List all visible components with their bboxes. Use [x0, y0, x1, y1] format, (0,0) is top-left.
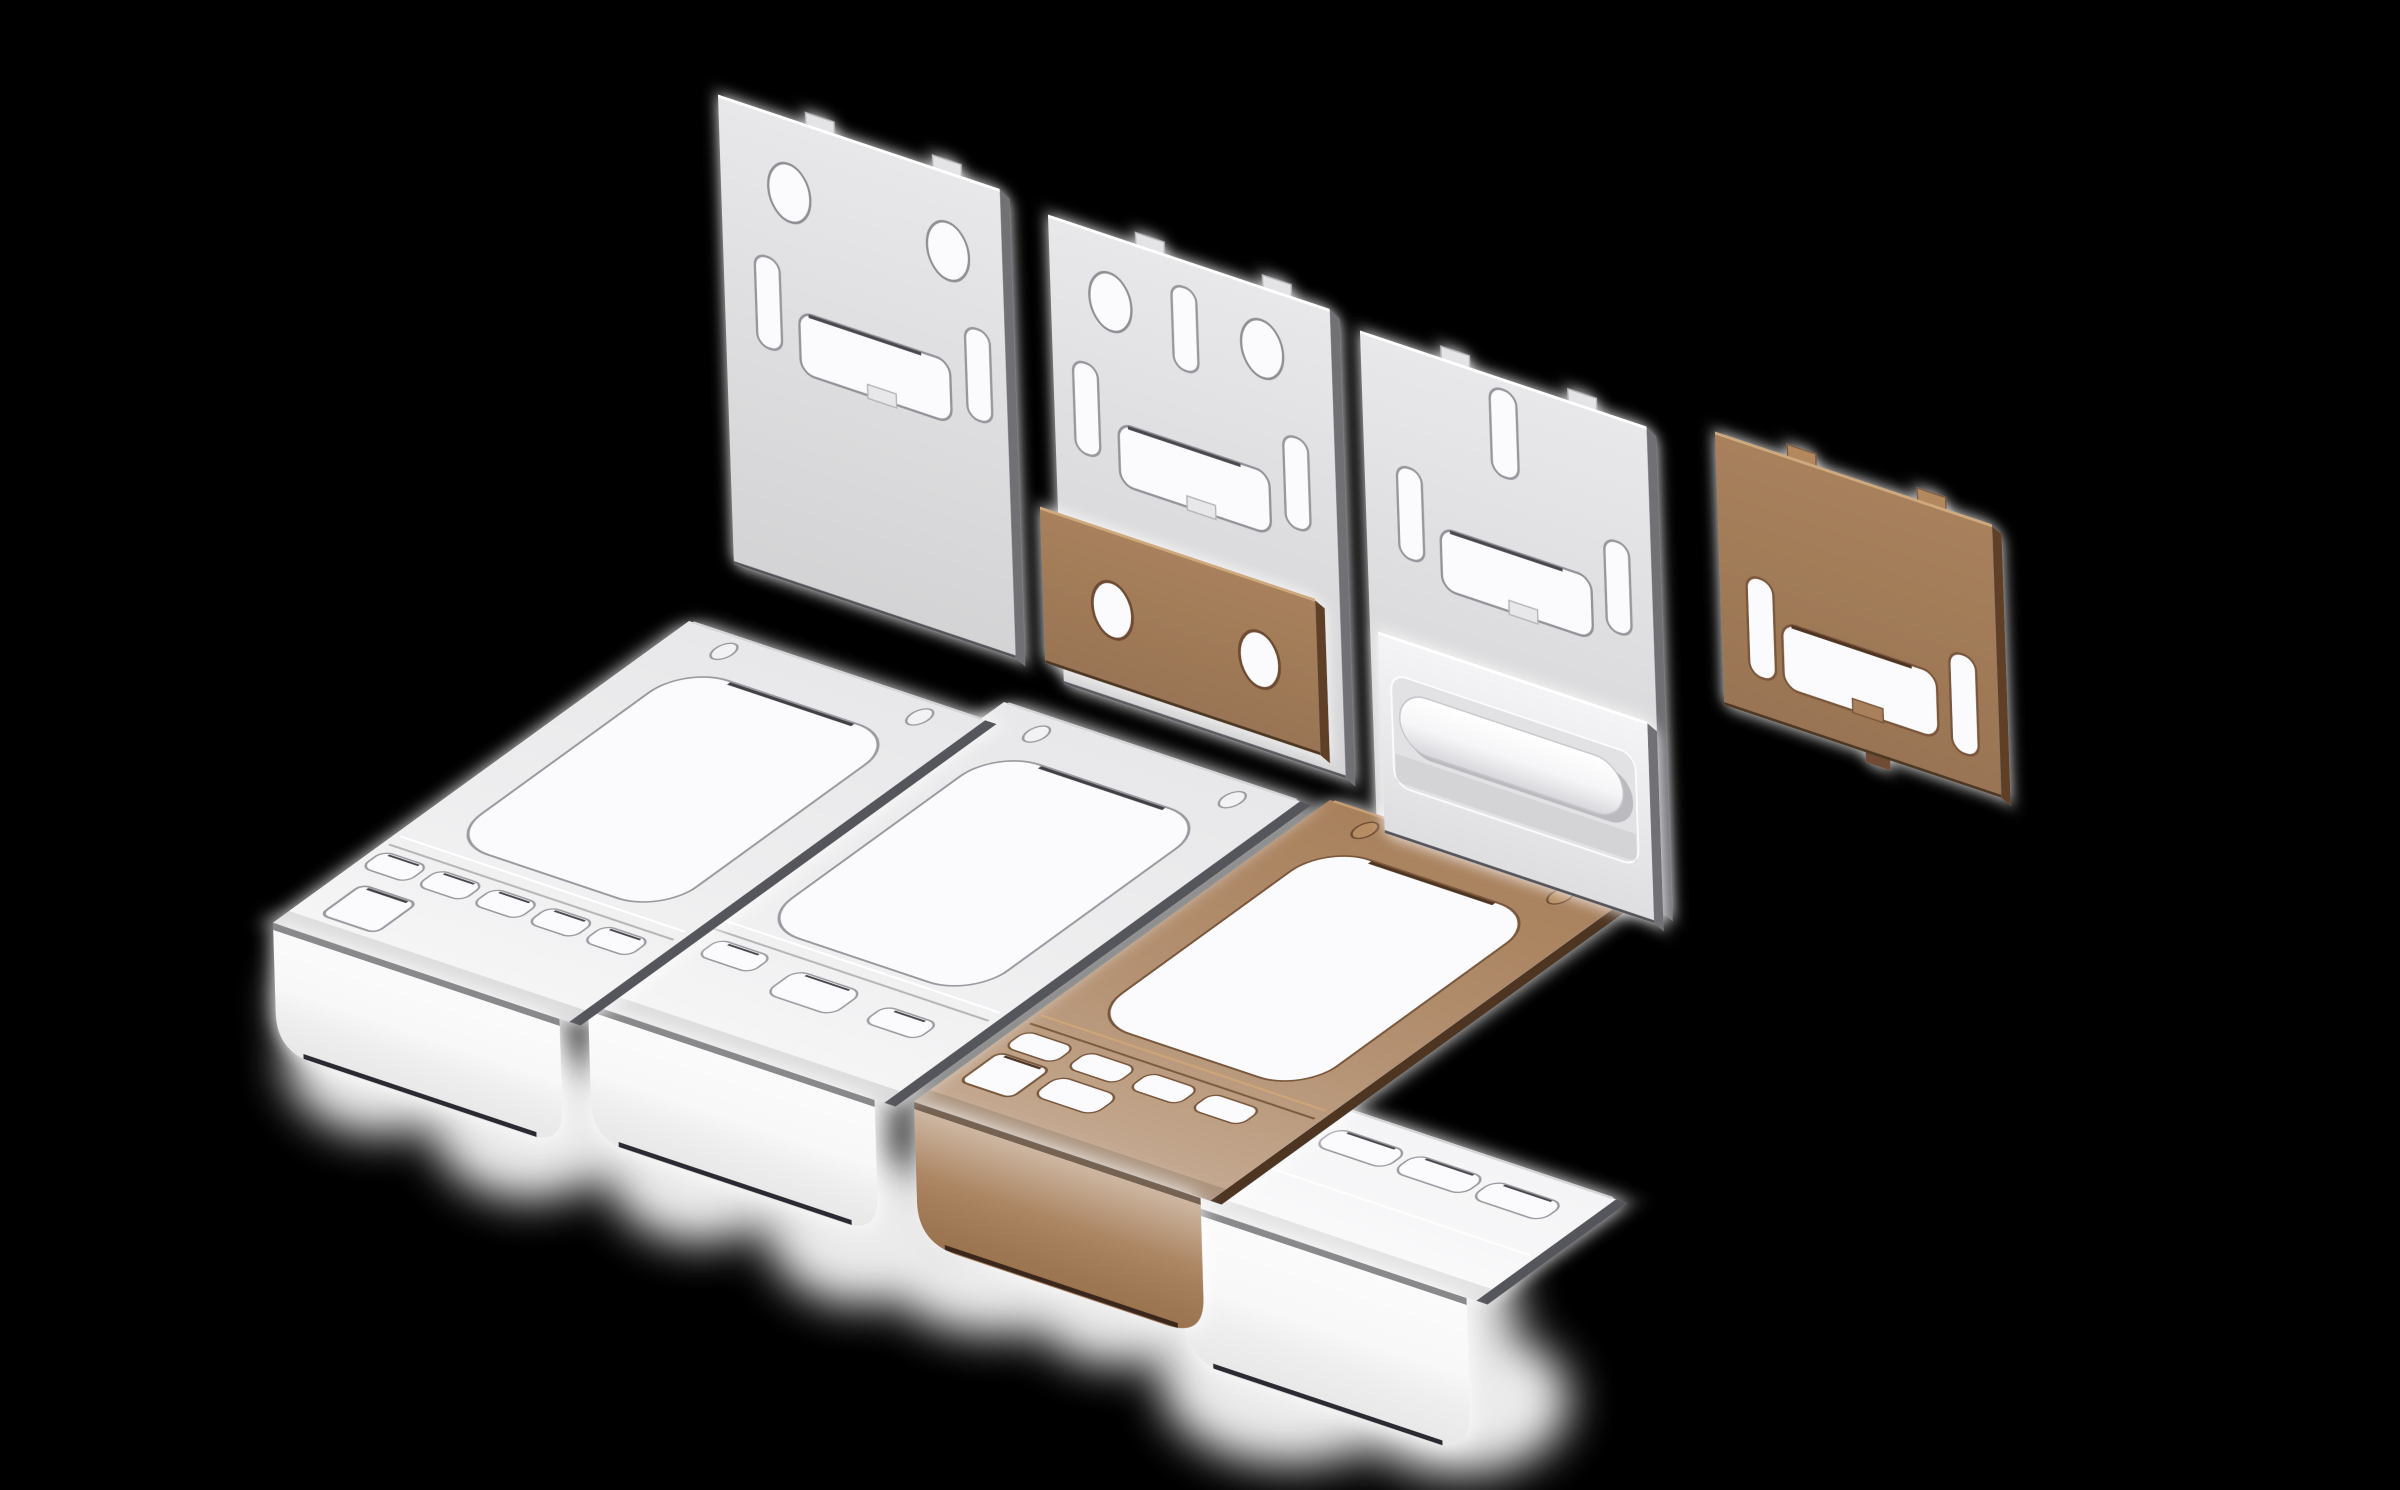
slot-left	[1073, 359, 1101, 459]
render-canvas	[0, 0, 2400, 1490]
slot-right	[1283, 433, 1311, 533]
slot-right	[1604, 537, 1632, 637]
slot-left	[754, 253, 782, 353]
slot-right	[1949, 650, 1979, 759]
slot-right	[965, 325, 993, 425]
slot-left	[1746, 574, 1776, 683]
render-stage	[0, 0, 2400, 1490]
slot-top	[1171, 283, 1199, 375]
slot-top	[1489, 385, 1519, 482]
slot-left	[1397, 464, 1425, 564]
